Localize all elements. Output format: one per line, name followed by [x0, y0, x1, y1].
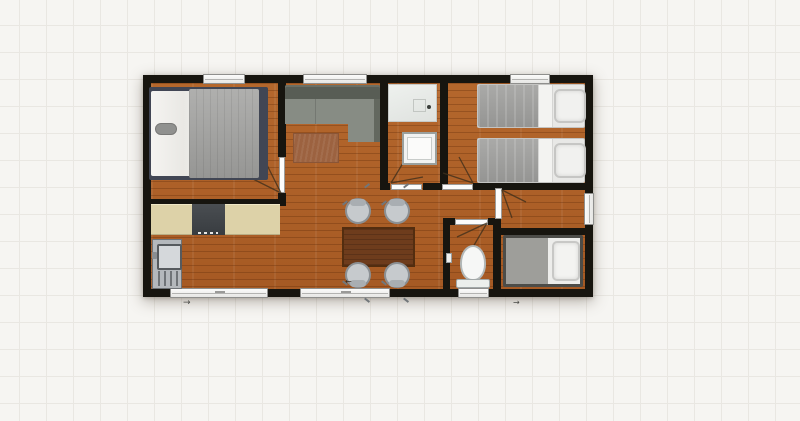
sliding-door-kitchen[interactable]: [170, 288, 268, 298]
bed-pillow: [552, 241, 580, 281]
wall-mid-b: [423, 183, 442, 190]
single-bed-1[interactable]: [477, 84, 585, 128]
double-bed-pillow: [155, 123, 177, 135]
wall-mid-a: [380, 183, 390, 190]
toilet-paper-holder[interactable]: [446, 253, 452, 263]
bed-blanket: [478, 139, 540, 182]
wall-wc-top-a: [443, 218, 455, 225]
slide-arrow-icon: →: [183, 299, 191, 308]
bed-duvet-fold: [538, 139, 553, 182]
wall-living-bathroom: [380, 83, 388, 190]
toilet[interactable]: [460, 245, 486, 281]
toilet-tank: [456, 279, 490, 288]
rug[interactable]: [293, 133, 339, 163]
shower[interactable]: [388, 84, 437, 122]
window-master[interactable]: [203, 74, 245, 84]
corner-sofa-back[interactable]: [285, 85, 380, 99]
corner-sofa-seat[interactable]: [285, 99, 348, 124]
door-vestibule[interactable]: [495, 188, 502, 219]
stove[interactable]: [192, 204, 225, 235]
bed-pillow: [554, 89, 586, 123]
entry-door-right[interactable]: [584, 193, 594, 225]
slide-arrow-icon: →: [513, 299, 520, 307]
kitchen-sink[interactable]: [152, 239, 182, 289]
single-bed-2[interactable]: [477, 138, 585, 183]
dining-chair-4[interactable]: [384, 262, 410, 288]
dining-table[interactable]: [342, 227, 415, 267]
door-swing-twinroom: [443, 157, 475, 185]
sliding-door-dining[interactable]: [300, 288, 390, 298]
window-wc[interactable]: [458, 288, 489, 298]
window-twinroom[interactable]: [510, 74, 550, 84]
single-bed-3[interactable]: [503, 235, 583, 287]
bed-blanket: [478, 85, 540, 127]
wall-singleroom-top: [493, 228, 585, 235]
bed-duvet-fold: [538, 85, 553, 127]
slide-arrow-icon: ←: [345, 278, 352, 286]
sink-bowl: [157, 244, 182, 270]
floor-plan: → ← →: [143, 75, 593, 297]
bed-pillow: [554, 143, 586, 178]
sink-drainer: [158, 271, 178, 286]
double-bed-duvet: [189, 89, 259, 178]
dining-chair-1[interactable]: [345, 198, 371, 224]
corner-sofa-armrest: [374, 99, 380, 142]
sink-faucet-icon: [152, 252, 157, 259]
wall-mid-c: [473, 183, 585, 190]
window-living[interactable]: [303, 74, 367, 84]
washbasin[interactable]: [402, 132, 437, 165]
door-swing-vestibule: [502, 188, 528, 220]
canvas-grid: → ← →: [0, 0, 800, 421]
dining-chair-2[interactable]: [384, 198, 410, 224]
